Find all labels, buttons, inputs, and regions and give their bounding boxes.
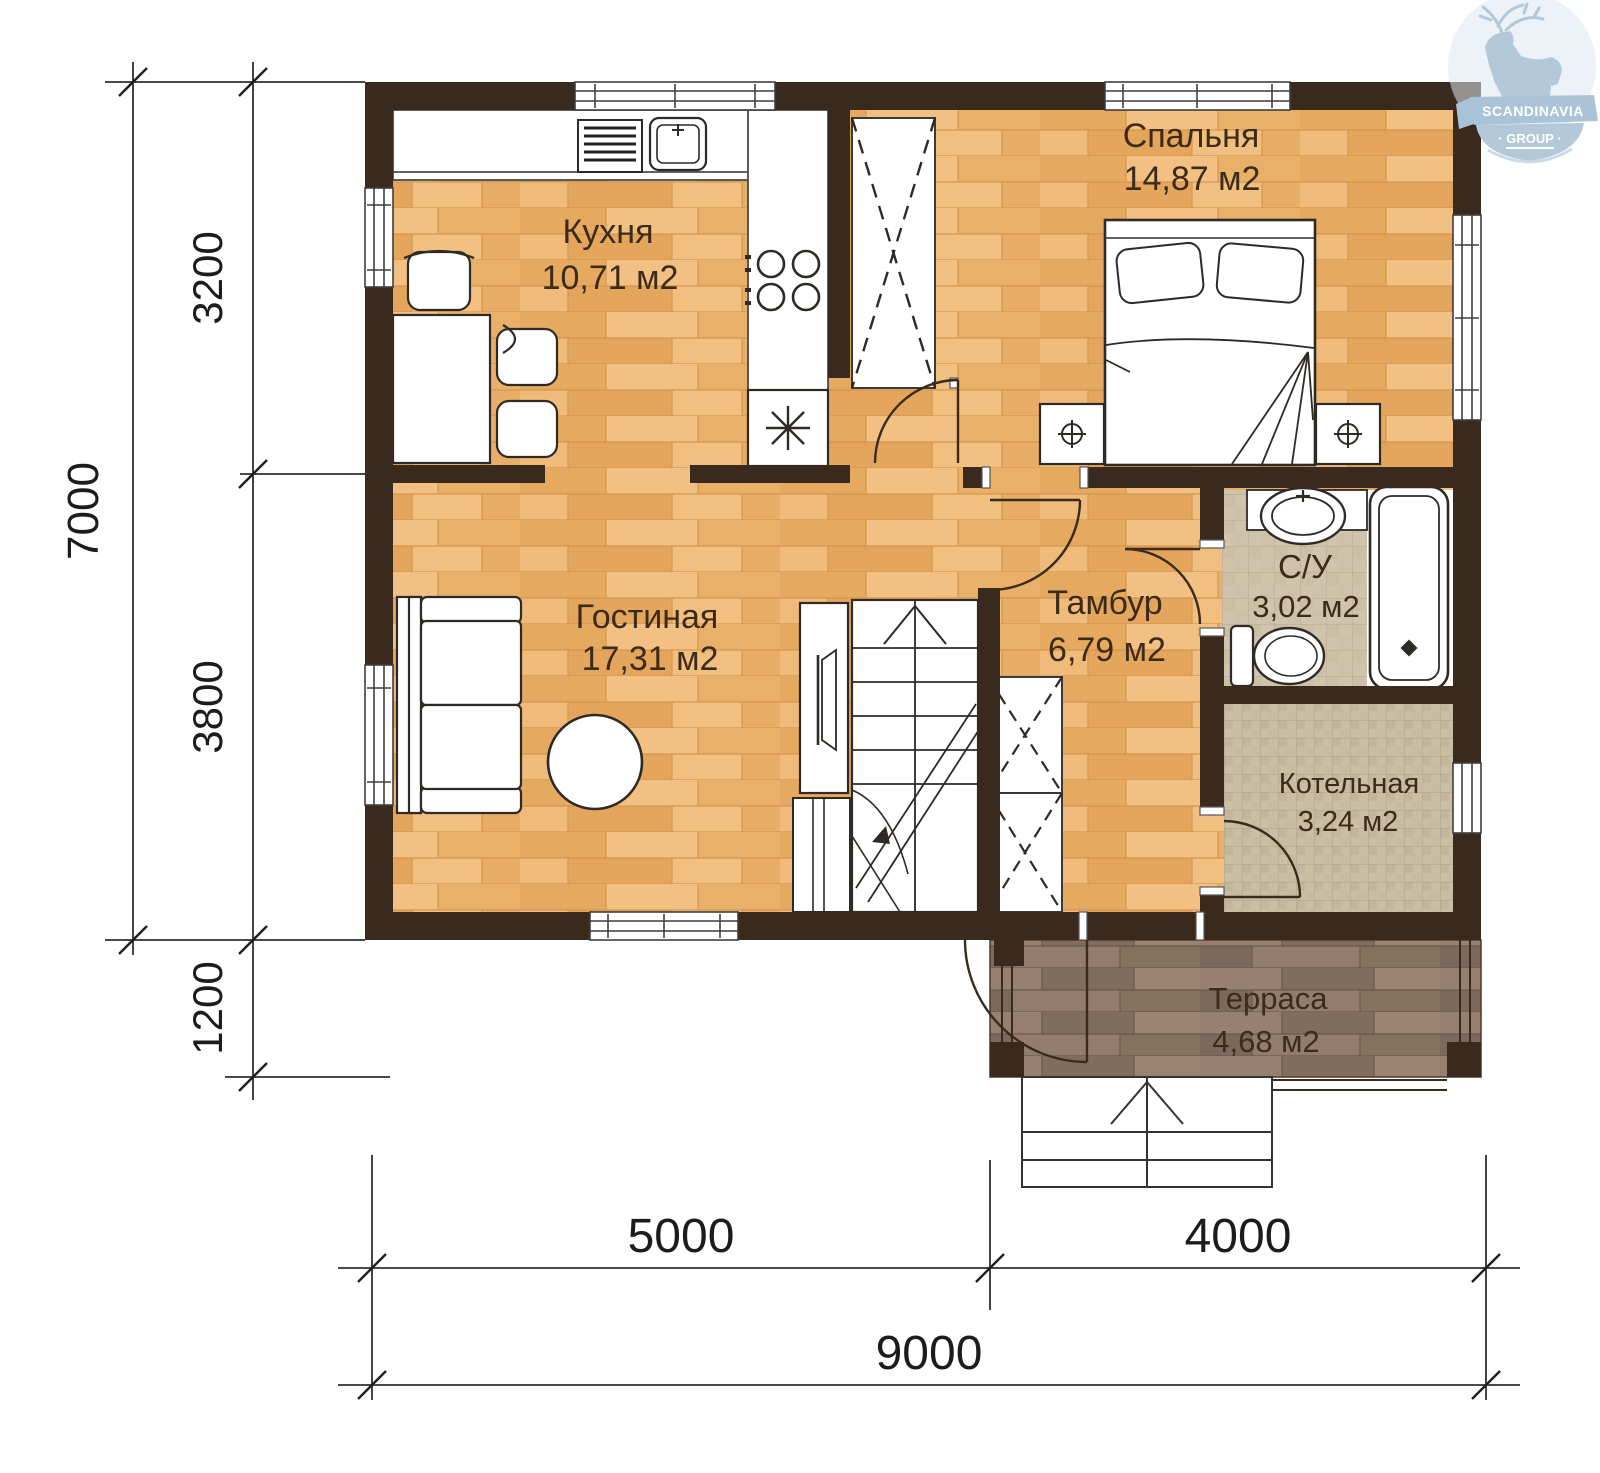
kitchen-area: 10,71 м2 — [542, 259, 679, 297]
bedroom-name: Спальня — [1123, 117, 1260, 155]
dim-left-middle: 3800 — [184, 660, 231, 753]
coffee-table — [548, 715, 642, 809]
wall-boiler-left-stub — [1200, 895, 1224, 912]
terrace-post — [994, 940, 1024, 966]
terrace-name: Терраса — [1209, 981, 1329, 1016]
boiler-area: 3,24 м2 — [1298, 806, 1399, 838]
wall-bedroom-bottom — [1080, 467, 1453, 488]
logo-line1: SCANDINAVIA — [1482, 103, 1584, 119]
bedroom-area: 14,87 м2 — [1124, 160, 1261, 198]
kitchen-chair — [497, 329, 557, 385]
kitchen-chair — [497, 401, 557, 457]
terrace-post — [990, 1042, 1024, 1077]
window-living-bottom — [590, 912, 738, 940]
dim-bottom-total: 9000 — [876, 1327, 983, 1380]
wall-boiler-left — [1200, 704, 1224, 815]
terrace-area: 4,68 м2 — [1212, 1024, 1320, 1059]
bedroom-wardrobe — [852, 118, 935, 388]
living-area: 17,31 м2 — [582, 640, 719, 678]
terrace-steps — [1022, 1077, 1272, 1187]
tv-unit — [800, 603, 848, 793]
tambour-name: Тамбур — [1047, 584, 1162, 622]
window-kitchen-left — [365, 188, 393, 287]
kitchen-name: Кухня — [563, 213, 654, 251]
dim-bottom-left: 5000 — [628, 1210, 735, 1263]
dim-left-total: 7000 — [59, 462, 108, 560]
terrace-post — [1447, 1042, 1481, 1077]
window-bedroom-right — [1453, 215, 1481, 420]
logo-line2: · GROUP · — [1498, 131, 1561, 146]
floor-plan-svg: Кухня 10,71 м2 Спальня 14,87 м2 Гостиная… — [0, 0, 1600, 1473]
wall-tambour-living — [978, 588, 1000, 912]
boiler-asterisk-icon — [766, 406, 810, 450]
wall-bathroom-left-top — [1200, 488, 1224, 548]
dim-left-bottom: 1200 — [184, 961, 231, 1054]
wall-bathroom-left-bottom — [1200, 628, 1224, 686]
wall-bottom — [365, 912, 1481, 940]
dim-left-top: 3200 — [184, 231, 231, 324]
living-name: Гостиная — [576, 598, 719, 636]
boiler-name: Котельная — [1279, 768, 1419, 800]
bathroom-area: 3,02 м2 — [1252, 589, 1360, 624]
wall-under-column — [690, 465, 850, 483]
window-living-left — [365, 665, 393, 805]
wall-kitchen-right — [828, 110, 850, 378]
bathroom-name: С/У — [1278, 548, 1333, 585]
kitchen-table — [393, 315, 490, 463]
kitchen-chair — [408, 252, 470, 310]
wall-kitchen-living — [393, 465, 545, 483]
tambour-area: 6,79 м2 — [1048, 631, 1166, 669]
wall-top — [365, 82, 1481, 110]
window-bedroom-top — [1105, 82, 1290, 110]
sofa — [397, 597, 521, 813]
wall-bathroom-boiler — [1200, 686, 1453, 704]
window-boiler-right — [1453, 763, 1481, 833]
dim-bottom-right: 4000 — [1185, 1210, 1292, 1263]
toilet-tank — [1231, 626, 1253, 686]
terrace-rail-bottom — [1272, 1080, 1447, 1090]
window-kitchen-top — [575, 82, 775, 110]
